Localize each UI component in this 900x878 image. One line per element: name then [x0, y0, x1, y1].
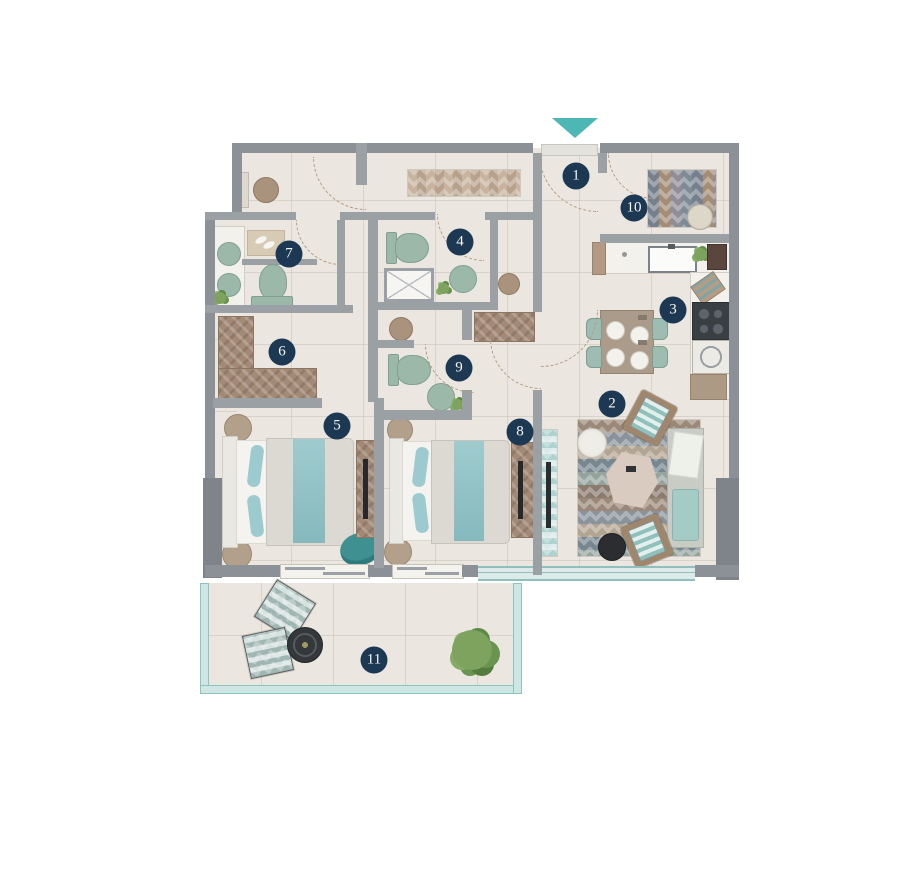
wall-bottom-1 — [205, 565, 280, 577]
window-mullion — [478, 572, 695, 573]
sofa — [667, 428, 704, 548]
closet6-wardrobe-left — [218, 316, 254, 370]
wall-bath9-top — [374, 340, 414, 348]
oven — [692, 340, 730, 374]
balcony-rail-right — [513, 583, 522, 694]
tv — [546, 462, 551, 528]
wall-bath7-top-b — [340, 212, 368, 220]
closet6-wardrobe-bottom — [218, 368, 317, 400]
bath4-plant — [438, 283, 449, 294]
sliding-panel — [285, 567, 325, 570]
toilet-bowl — [259, 264, 287, 299]
bed8-runner-stripe — [454, 441, 484, 541]
bath4-sink — [449, 265, 477, 293]
wall-corridor-upper — [533, 153, 542, 312]
coffee-machine — [707, 244, 727, 270]
remote — [626, 466, 636, 472]
bed8-wardrobe-tv — [511, 442, 534, 538]
stove — [692, 302, 730, 340]
dining-chair — [652, 346, 668, 368]
balcony-rail-bottom — [200, 685, 522, 694]
wall-kitchen-top — [600, 234, 729, 243]
room-marker-10: 10 — [621, 195, 648, 222]
sliding-panel — [397, 567, 427, 570]
wall-left-upper — [232, 143, 242, 218]
wall-bedroom-divider — [374, 398, 384, 568]
balcony-plant — [452, 630, 492, 670]
pillow-teal — [246, 444, 264, 487]
balcony-chair-2 — [242, 627, 294, 679]
hall-stool — [389, 317, 413, 341]
room-marker-11: 11 — [361, 647, 388, 674]
nook-stool — [253, 177, 279, 203]
sofa-throw — [668, 431, 704, 479]
room10-pouf — [687, 204, 713, 230]
pouf-dark — [598, 533, 626, 561]
wall-top-right — [600, 143, 739, 153]
bath7-plant — [214, 292, 226, 304]
wall-top-left — [232, 143, 533, 153]
wall-bath7-bottom — [205, 305, 353, 313]
sliding-door-bed8 — [392, 564, 464, 579]
kitchen-sink — [648, 246, 697, 273]
bed5-runner-stripe — [293, 439, 325, 543]
toilet-bowl — [395, 233, 429, 263]
floor-plan: 1234567891011 — [0, 0, 900, 878]
room-marker-3: 3 — [660, 297, 687, 324]
balcony-table — [287, 627, 323, 663]
wall-bath9-bottom — [374, 410, 472, 420]
sliding-door-bed5 — [280, 564, 370, 579]
table-decor — [638, 315, 647, 320]
pillow-teal — [246, 494, 264, 537]
bed8-pillows — [402, 441, 433, 541]
bed5-pillows — [236, 440, 268, 544]
room-marker-5: 5 — [324, 413, 351, 440]
plate — [630, 351, 649, 370]
wall-closet6-bottom — [213, 398, 322, 408]
sofa-chaise-cushion — [672, 489, 699, 541]
bed5-duvet — [266, 438, 354, 546]
wall-entry-room10 — [598, 153, 607, 173]
wall-bath7-top-a — [205, 212, 296, 220]
plate — [606, 348, 625, 367]
sliding-panel — [323, 572, 365, 575]
kitchen-tall-unit — [592, 242, 606, 275]
table-decor — [638, 340, 647, 345]
wall-dressing-nook — [490, 212, 498, 310]
bath9-toilet — [388, 354, 430, 384]
balcony-rail-left — [200, 583, 209, 694]
dining-table — [600, 310, 654, 374]
pillow-teal — [412, 492, 430, 533]
toilet-bowl — [397, 355, 431, 385]
room-marker-2: 2 — [599, 391, 626, 418]
wall-bath4-bottom — [368, 302, 496, 310]
column-left — [203, 478, 222, 578]
pillow-teal — [412, 446, 430, 487]
kitchen-plant — [694, 248, 707, 261]
lounge-chair-seat — [628, 520, 667, 562]
wall-bottom-4 — [695, 565, 739, 577]
tv — [363, 459, 368, 519]
room-marker-6: 6 — [269, 339, 296, 366]
counter-knob — [622, 252, 627, 257]
wall-living-left — [533, 390, 542, 575]
bath4-toilet — [386, 232, 428, 262]
wall-bath4-top-a — [368, 212, 435, 220]
room-marker-7: 7 — [276, 241, 303, 268]
plate — [606, 321, 625, 340]
lounge-chair-seat — [630, 396, 671, 439]
room-marker-9: 9 — [446, 355, 473, 382]
wall-vestibule-left-a — [462, 310, 472, 340]
bath4-shower — [384, 268, 434, 302]
pouf-white — [577, 428, 607, 458]
dining-chair — [586, 346, 602, 368]
entry-arrow-icon — [552, 118, 598, 138]
bath7-toilet — [251, 264, 291, 305]
bath7-sink-1 — [217, 242, 241, 266]
room-marker-4: 4 — [447, 229, 474, 256]
sliding-panel — [425, 572, 459, 575]
faucet-icon — [668, 244, 675, 249]
bed8-duvet — [431, 440, 510, 544]
room-marker-1: 1 — [563, 163, 590, 190]
hallway-runner-rug — [408, 170, 520, 196]
room-marker-8: 8 — [507, 419, 534, 446]
kitchen-counter-wood — [690, 374, 727, 400]
living-window — [478, 566, 695, 581]
tv — [518, 461, 523, 519]
dressing-nook-stool — [498, 273, 520, 295]
wall-bottom-3 — [462, 565, 478, 577]
